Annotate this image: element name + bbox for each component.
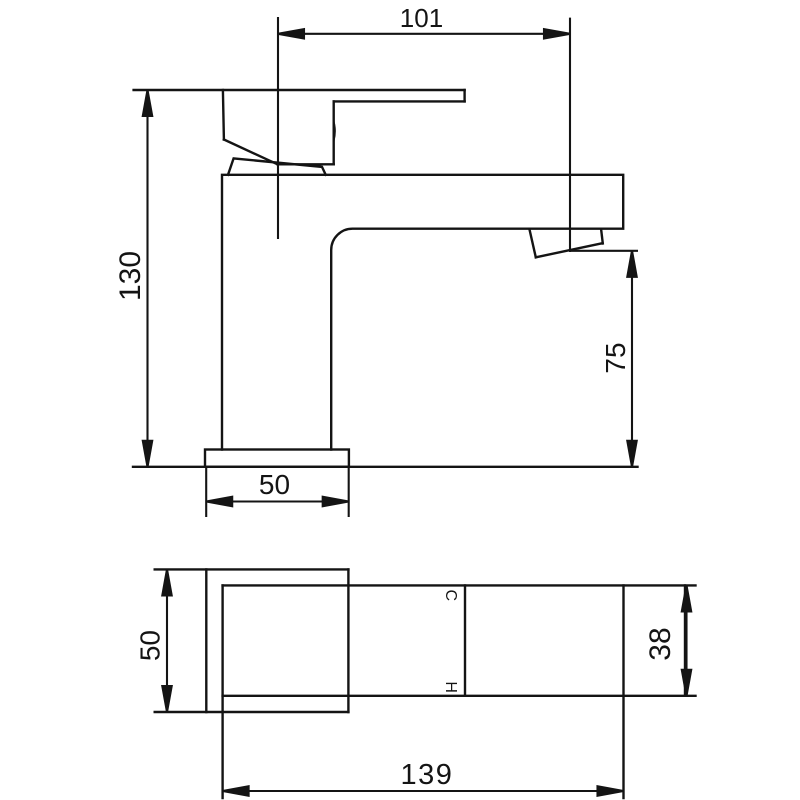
svg-text:139: 139 xyxy=(401,759,454,791)
svg-text:H: H xyxy=(442,681,459,693)
svg-text:130: 130 xyxy=(114,251,147,301)
svg-text:38: 38 xyxy=(644,627,677,660)
svg-text:50: 50 xyxy=(259,469,290,500)
svg-text:C: C xyxy=(442,590,459,602)
svg-text:75: 75 xyxy=(600,342,631,373)
svg-text:101: 101 xyxy=(400,3,443,33)
svg-text:50: 50 xyxy=(135,630,166,661)
